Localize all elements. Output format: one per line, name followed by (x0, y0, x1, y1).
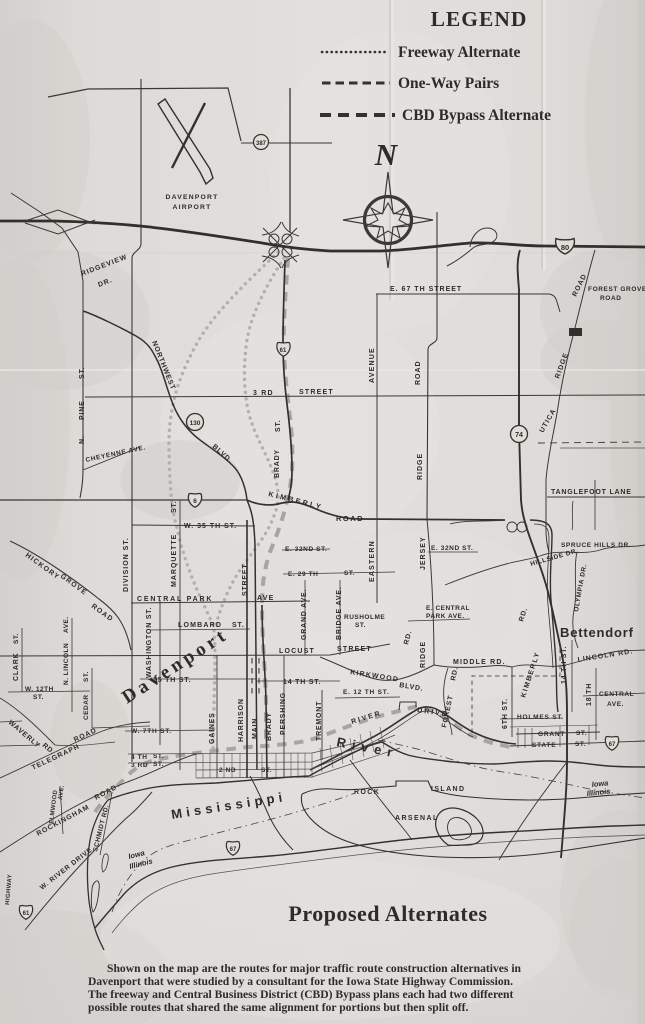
svg-text:E. 32ND ST.: E. 32ND ST. (431, 545, 473, 552)
svg-text:HOLMES ST.: HOLMES ST. (517, 714, 564, 721)
svg-text:TANGLEFOOT LANE: TANGLEFOOT LANE (551, 489, 632, 496)
svg-text:WASHINGTON ST.: WASHINGTON ST. (146, 607, 153, 678)
svg-text:Davenport that were studied by: Davenport that were studied by a consult… (88, 975, 513, 988)
svg-text:6TH ST.: 6TH ST. (502, 698, 509, 729)
svg-text:ST.: ST. (355, 622, 366, 629)
svg-text:DIVISION ST.: DIVISION ST. (123, 537, 130, 592)
svg-text:61: 61 (571, 329, 579, 336)
svg-text:EASTERN: EASTERN (369, 540, 376, 582)
svg-text:LOCUST: LOCUST (279, 648, 315, 655)
svg-text:6: 6 (193, 498, 197, 505)
svg-text:CENTRAL: CENTRAL (599, 691, 634, 698)
svg-text:E. CENTRAL: E. CENTRAL (426, 605, 470, 612)
svg-text:AIRPORT: AIRPORT (173, 204, 212, 211)
svg-text:FOREST GROVE: FOREST GROVE (588, 286, 645, 293)
svg-text:MAIN: MAIN (252, 718, 259, 739)
svg-text:74: 74 (515, 432, 523, 439)
svg-text:STATE: STATE (532, 742, 556, 749)
svg-text:JERSEY: JERSEY (420, 536, 427, 570)
svg-text:ST.: ST. (13, 633, 20, 644)
svg-text:TREMONT: TREMONT (316, 701, 323, 741)
svg-text:14 TH ST.: 14 TH ST. (283, 679, 321, 686)
svg-text:BRADY: BRADY (266, 712, 273, 741)
svg-text:SPRUCE HILLS DR.: SPRUCE HILLS DR. (561, 542, 631, 549)
svg-text:RUSHOLME: RUSHOLME (344, 614, 385, 621)
svg-text:AVE.: AVE. (607, 701, 624, 708)
svg-text:MARQUETTE: MARQUETTE (171, 534, 178, 587)
svg-text:ST.: ST. (344, 570, 355, 577)
svg-text:61: 61 (280, 348, 287, 354)
svg-text:GAINES: GAINES (209, 712, 216, 744)
svg-text:ARSENAL: ARSENAL (395, 815, 439, 822)
svg-text:STREET: STREET (299, 389, 334, 396)
svg-text:14 TH ST.: 14 TH ST. (561, 646, 568, 684)
svg-text:ST.: ST. (171, 500, 178, 513)
svg-text:PERSHING: PERSHING (280, 692, 287, 735)
svg-text:AVENUE: AVENUE (369, 347, 376, 383)
svg-text:W. 12TH: W. 12TH (25, 686, 54, 693)
svg-text:GRAND AVE.: GRAND AVE. (301, 589, 308, 640)
svg-text:E. 12 TH ST.: E. 12 TH ST. (343, 689, 389, 696)
svg-text:2 ND: 2 ND (219, 767, 236, 774)
svg-text:67: 67 (609, 742, 616, 748)
svg-text:Freeway Alternate: Freeway Alternate (398, 44, 520, 61)
svg-text:18 TH: 18 TH (586, 683, 593, 706)
svg-text:One-Way Pairs: One-Way Pairs (398, 75, 499, 92)
svg-text:E. 32ND ST.: E. 32ND ST. (285, 546, 327, 553)
svg-text:BRIDGE AVE.: BRIDGE AVE. (336, 586, 343, 640)
svg-text:Proposed Alternates: Proposed Alternates (288, 901, 487, 926)
svg-text:STREET: STREET (242, 564, 249, 596)
svg-text:W. 7TH ST.: W. 7TH ST. (131, 728, 172, 735)
svg-text:ST.: ST. (83, 671, 90, 682)
svg-text:PARK AVE.: PARK AVE. (426, 613, 465, 620)
svg-text:The freeway and Central Busine: The freeway and Central Business Distric… (88, 988, 513, 1001)
svg-text:61: 61 (23, 911, 30, 917)
svg-text:PINE: PINE (79, 400, 86, 420)
svg-text:ROAD: ROAD (415, 360, 422, 385)
svg-text:E. 67 TH STREET: E. 67 TH STREET (390, 286, 462, 293)
svg-text:W. 35 TH ST.: W. 35 TH ST. (184, 523, 237, 530)
svg-text:CLARK: CLARK (13, 653, 20, 682)
svg-text:Bettendorf: Bettendorf (560, 625, 634, 640)
svg-text:ST.: ST. (275, 419, 282, 432)
svg-text:HARRISON: HARRISON (238, 698, 245, 742)
svg-text:AVE.: AVE. (63, 616, 70, 633)
svg-text:CENTRAL PARK: CENTRAL PARK (137, 596, 213, 603)
svg-text:MIDDLE RD.: MIDDLE RD. (453, 659, 506, 666)
svg-text:130: 130 (190, 420, 201, 427)
svg-text:CBD Bypass Alternate: CBD Bypass Alternate (402, 107, 551, 124)
svg-text:DAVENPORT: DAVENPORT (166, 194, 219, 201)
svg-text:67: 67 (230, 847, 237, 853)
svg-text:RIDGE: RIDGE (417, 453, 424, 480)
svg-text:ROAD: ROAD (600, 295, 622, 302)
svg-text:possible routes that shared th: possible routes that shared the same ali… (88, 1001, 468, 1014)
svg-text:RIDGE: RIDGE (420, 641, 427, 668)
svg-text:STREET: STREET (337, 646, 372, 653)
svg-text:3 RD: 3 RD (253, 390, 274, 397)
svg-text:ST.: ST. (232, 622, 245, 629)
svg-text:N. LINCOLN: N. LINCOLN (63, 643, 70, 685)
svg-text:E. 29 TH: E. 29 TH (288, 571, 318, 578)
svg-text:ST.: ST. (576, 730, 587, 737)
svg-text:ROAD: ROAD (336, 514, 364, 523)
svg-text:BRADY: BRADY (274, 449, 281, 478)
svg-text:Shown on the map are the route: Shown on the map are the routes for majo… (107, 962, 522, 975)
svg-text:4 TH: 4 TH (131, 754, 148, 761)
svg-text:LEGEND: LEGEND (431, 7, 528, 31)
svg-text:387: 387 (256, 141, 267, 147)
svg-text:ST.: ST. (79, 366, 86, 379)
svg-text:ISLAND: ISLAND (431, 786, 465, 793)
svg-text:ST.: ST. (575, 741, 586, 748)
svg-text:CEDAR: CEDAR (83, 694, 90, 720)
svg-text:AVE: AVE (257, 595, 274, 602)
svg-text:80: 80 (561, 243, 569, 252)
svg-text:N: N (374, 137, 399, 172)
svg-text:ST.: ST. (33, 694, 44, 701)
svg-text:N.: N. (79, 435, 86, 444)
svg-text:GRANT: GRANT (538, 731, 565, 738)
